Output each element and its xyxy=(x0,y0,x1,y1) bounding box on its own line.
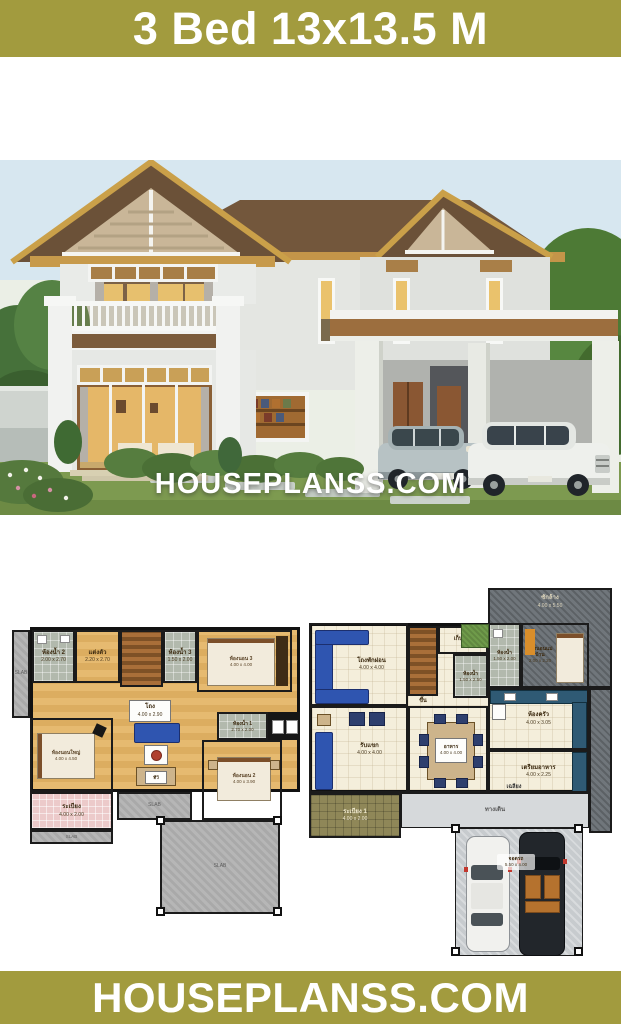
master-bedroom: ห้องนอนใหญ่ 4.00 x 4.50 xyxy=(30,718,113,792)
headboard xyxy=(208,639,274,643)
prep-counter xyxy=(572,752,587,793)
bathroom-2: ห้องน้ำ 2 2.00 x 2.70 xyxy=(32,630,75,683)
lounge-sofa xyxy=(315,630,369,645)
header-band: 3 Bed 13x13.5 M xyxy=(0,0,621,57)
balcony-second-floor: ระเบียง 4.00 x 2.00 xyxy=(30,792,113,830)
terrace-1: ระเบียง 1 4.00 x 2.00 xyxy=(309,793,401,838)
speaker-dial xyxy=(151,750,162,761)
kitchen-sink xyxy=(546,693,558,701)
slab-big: SLAB xyxy=(160,820,280,914)
slab-under-balcony: SLAB xyxy=(30,830,113,844)
bathroom-1: ห้องน้ำ 1 2.70 x 2.00 xyxy=(217,712,268,740)
dining-chair xyxy=(434,778,446,788)
dining-room: อาหาร 4.00 x 4.00 xyxy=(408,706,488,793)
slab-left: SLAB xyxy=(12,630,30,718)
toilet xyxy=(37,635,47,644)
footer-site-name: HOUSEPLANSS.COM xyxy=(92,974,529,1022)
bathroom-top: ห้องน้ำ 1.50 x 2.00 xyxy=(488,623,521,688)
side-table xyxy=(317,714,331,726)
page: 3 Bed 13x13.5 M xyxy=(0,0,621,1024)
walkway: ทางเดิน xyxy=(401,793,589,828)
post xyxy=(156,907,165,916)
bedroom-2: ห้องนอน 2 4.00 x 3.90 xyxy=(202,740,282,820)
wash-side-strip xyxy=(589,688,612,833)
tv-unit xyxy=(144,745,168,765)
armchair xyxy=(369,712,385,726)
dining-chair xyxy=(456,778,468,788)
black-car-plan xyxy=(519,832,565,956)
footer-band: HOUSEPLANSS.COM xyxy=(0,971,621,1024)
dining-chair xyxy=(473,756,483,768)
toilet xyxy=(493,629,503,638)
post xyxy=(574,824,583,833)
seat xyxy=(544,875,560,899)
post xyxy=(156,816,165,825)
wardrobe xyxy=(276,636,288,686)
wardrobe xyxy=(525,629,535,655)
post xyxy=(273,816,282,825)
dining-label: อาหาร 4.00 x 4.00 xyxy=(435,738,467,763)
lounge-hall: โถงพักผ่อน 4.00 x 4.00 xyxy=(309,623,408,706)
guest-sofa xyxy=(315,732,333,790)
mirror xyxy=(464,867,468,872)
hall-label: โถง 4.00 x 2.90 xyxy=(129,700,171,722)
wardrobe-door xyxy=(272,720,284,734)
stairs-up-label: ขึ้น xyxy=(406,696,440,708)
rear-window xyxy=(471,913,503,926)
bed: ห้องนอน 2 4.00 x 3.90 xyxy=(217,757,271,801)
bathroom-3: ห้องน้ำ 3 1.50 x 2.00 xyxy=(163,630,197,683)
rear-seat xyxy=(525,901,560,913)
slab-center: SLAB xyxy=(117,792,192,820)
balcony xyxy=(66,301,226,351)
bedside-table xyxy=(270,760,280,770)
sink xyxy=(60,635,70,643)
bed: ห้องนอน 3 4.00 x 4.00 xyxy=(207,638,275,686)
built-in-wardrobe xyxy=(268,712,300,740)
stairs-second-floor xyxy=(120,630,163,687)
garage-label: จอดรถ 5.50 x 4.00 xyxy=(497,854,535,870)
bathroom-mid: ห้องน้ำ 1.50 x 2.50 xyxy=(453,654,488,698)
headboard xyxy=(218,758,270,762)
post xyxy=(451,947,460,956)
hall-sofa xyxy=(134,723,180,743)
mirror xyxy=(563,859,567,864)
page-title: 3 Bed 13x13.5 M xyxy=(133,3,488,55)
dining-chair xyxy=(434,714,446,724)
fridge xyxy=(492,704,506,720)
tv-cabinet: ทีวี xyxy=(136,767,176,786)
post xyxy=(273,907,282,916)
seat xyxy=(525,875,541,899)
stairs-first-floor xyxy=(408,626,438,696)
photo-watermark: HOUSEPLANSS.COM xyxy=(0,468,621,501)
house-render-svg xyxy=(0,160,621,515)
porch-label: เฉลียง xyxy=(489,782,539,794)
dining-chair xyxy=(419,734,429,746)
tv-label: ทีวี xyxy=(145,771,167,784)
guest-room: รับแขก 4.00 x 4.00 xyxy=(309,706,408,793)
bed: ห้องนอนใหญ่ 4.00 x 4.50 xyxy=(37,733,95,779)
house-render-photo xyxy=(0,160,621,515)
dressing-room: แต่งตัว 2.20 x 2.70 xyxy=(75,630,120,683)
headboard xyxy=(557,634,583,638)
kitchen: ห้องครัว 4.00 x 3.05 xyxy=(488,688,589,750)
second-floor-plan: SLAB ห้องน้ำ 2 2.00 x 2.70 แต่งตัว 2.20 … xyxy=(12,622,302,938)
bedroom-3: ห้องนอน 3 4.00 x 4.00 xyxy=(197,630,292,692)
post xyxy=(451,824,460,833)
kitchen-counter xyxy=(572,702,587,750)
post xyxy=(574,947,583,956)
planter-patch xyxy=(461,624,489,648)
dining-chair xyxy=(473,734,483,746)
maid-bedroom: ห้องนอนแม่บ้าน 2.00 x 2.20 xyxy=(521,623,589,688)
maid-bed xyxy=(556,633,584,683)
wardrobe-door xyxy=(286,720,298,734)
kitchen-sink xyxy=(504,693,516,701)
headboard xyxy=(38,734,42,778)
first-floor-plan: ซักล้าง 4.00 x 5.50 โถงพักผ่อน 4.00 x 4.… xyxy=(303,588,612,958)
dining-chair xyxy=(456,714,468,724)
bedside-table xyxy=(208,760,218,770)
dining-chair xyxy=(419,756,429,768)
car-roof xyxy=(471,883,503,909)
armchair xyxy=(349,712,365,726)
lounge-sofa xyxy=(315,689,369,704)
